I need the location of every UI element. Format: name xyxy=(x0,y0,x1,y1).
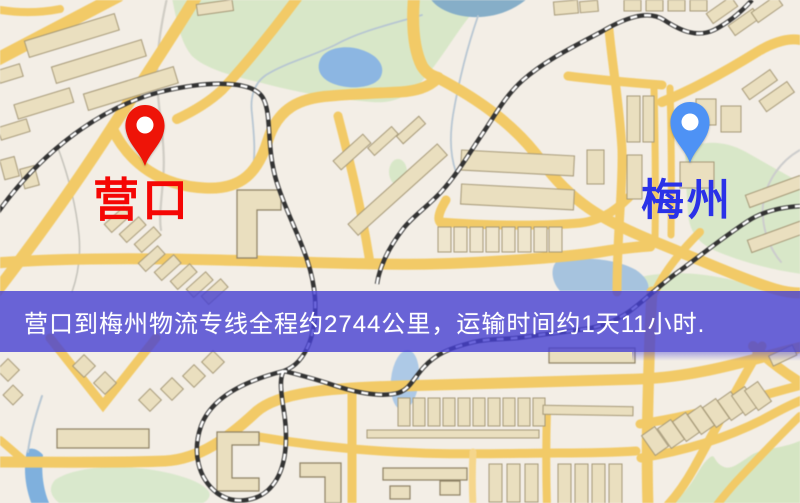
map-screenshot: 营口到梅州物流专线全程约2744公里，运输时间约1天11小时. 营口 梅州 xyxy=(0,0,800,503)
banner-bottom-fade xyxy=(632,352,800,361)
origin-label: 营口 xyxy=(93,177,191,223)
route-info-text: 营口到梅州物流专线全程约2744公里，运输时间约1天11小时. xyxy=(0,304,705,339)
origin-pin[interactable] xyxy=(123,103,167,168)
destination-pin[interactable] xyxy=(668,100,712,165)
map-pin-icon xyxy=(668,100,712,165)
route-info-banner: 营口到梅州物流专线全程约2744公里，运输时间约1天11小时. xyxy=(0,291,800,352)
map-canvas[interactable] xyxy=(0,0,800,503)
destination-label: 梅州 xyxy=(641,180,733,223)
map-pin-icon xyxy=(123,103,167,168)
